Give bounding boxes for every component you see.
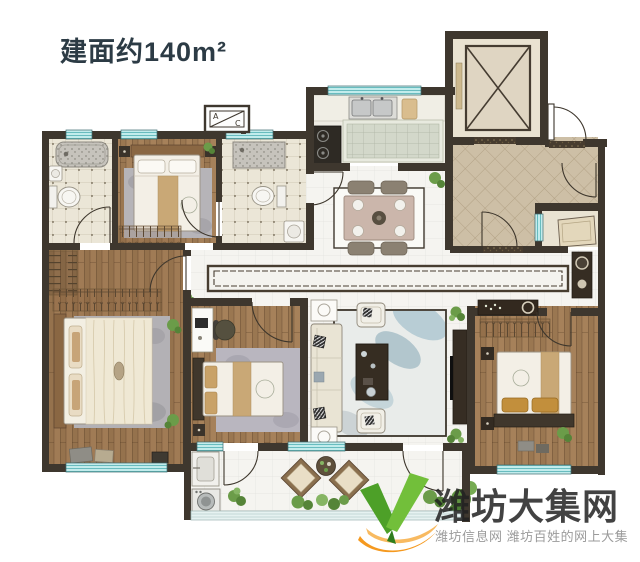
cutting-board-icon xyxy=(402,99,417,119)
toilet-icon xyxy=(49,186,80,208)
bathroom-sink-icon xyxy=(284,221,304,242)
window-icon xyxy=(328,86,421,95)
dining-chair-icon xyxy=(381,242,407,255)
kitchen-counter xyxy=(313,95,445,121)
bedroom3-wardrobe xyxy=(480,319,550,337)
window-icon xyxy=(121,130,157,139)
dining-chair-icon xyxy=(348,242,374,255)
elevator-shaft xyxy=(456,46,530,130)
site-logo-icon xyxy=(352,470,447,556)
living-rug xyxy=(327,291,454,443)
entry-bench-icon xyxy=(558,216,596,247)
bathroom-sink-icon xyxy=(49,166,62,181)
dining-chair-icon xyxy=(348,181,374,194)
dining-chair-icon xyxy=(381,181,407,194)
shower-icon xyxy=(233,142,285,168)
window-icon xyxy=(535,214,543,241)
sofa-icon xyxy=(311,324,342,432)
elevator-panel xyxy=(456,63,462,109)
window-icon xyxy=(66,463,167,472)
ac-unit-label: A C xyxy=(205,106,249,134)
coffee-table-icon xyxy=(356,344,388,400)
master-closet xyxy=(49,251,77,295)
bathtub-icon xyxy=(56,142,108,167)
window-icon xyxy=(66,130,92,139)
watermark-tagline: 潍坊信息网 潍坊百姓的网上大集 xyxy=(435,526,640,545)
window-icon xyxy=(197,442,223,451)
floor-plan-page: 建面约140m² xyxy=(0,0,640,562)
master-wardrobe xyxy=(53,289,161,311)
kitchen-sink-icon xyxy=(352,100,371,116)
dining-set xyxy=(334,181,424,255)
washing-machine-icon xyxy=(192,489,220,514)
console-table-icon xyxy=(478,300,538,315)
ac-letter-a: A xyxy=(213,112,219,121)
kitchen-island xyxy=(343,120,443,162)
window-icon xyxy=(288,442,345,451)
entry-door-arc xyxy=(548,104,586,140)
balcony-table-icon xyxy=(317,457,336,476)
stove-icon xyxy=(313,126,341,164)
runner-rug xyxy=(208,266,568,291)
armchair-icon xyxy=(357,409,385,433)
armchair-icon xyxy=(357,303,385,327)
desk-chair-icon xyxy=(213,320,235,340)
bedroom1-wardrobe xyxy=(119,226,181,243)
watermark: 潍坊大集网 潍坊信息网 潍坊百姓的网上大集 xyxy=(352,466,640,558)
watermark-site-name: 潍坊大集网 xyxy=(434,478,640,530)
master-bed-icon xyxy=(54,314,152,428)
console-mirror-icon xyxy=(572,252,592,298)
desk-icon xyxy=(192,308,213,352)
laundry-sink-icon xyxy=(192,452,219,486)
toilet-icon xyxy=(252,186,286,207)
logo-v-right xyxy=(386,473,429,532)
ac-letter-c: C xyxy=(235,119,241,128)
